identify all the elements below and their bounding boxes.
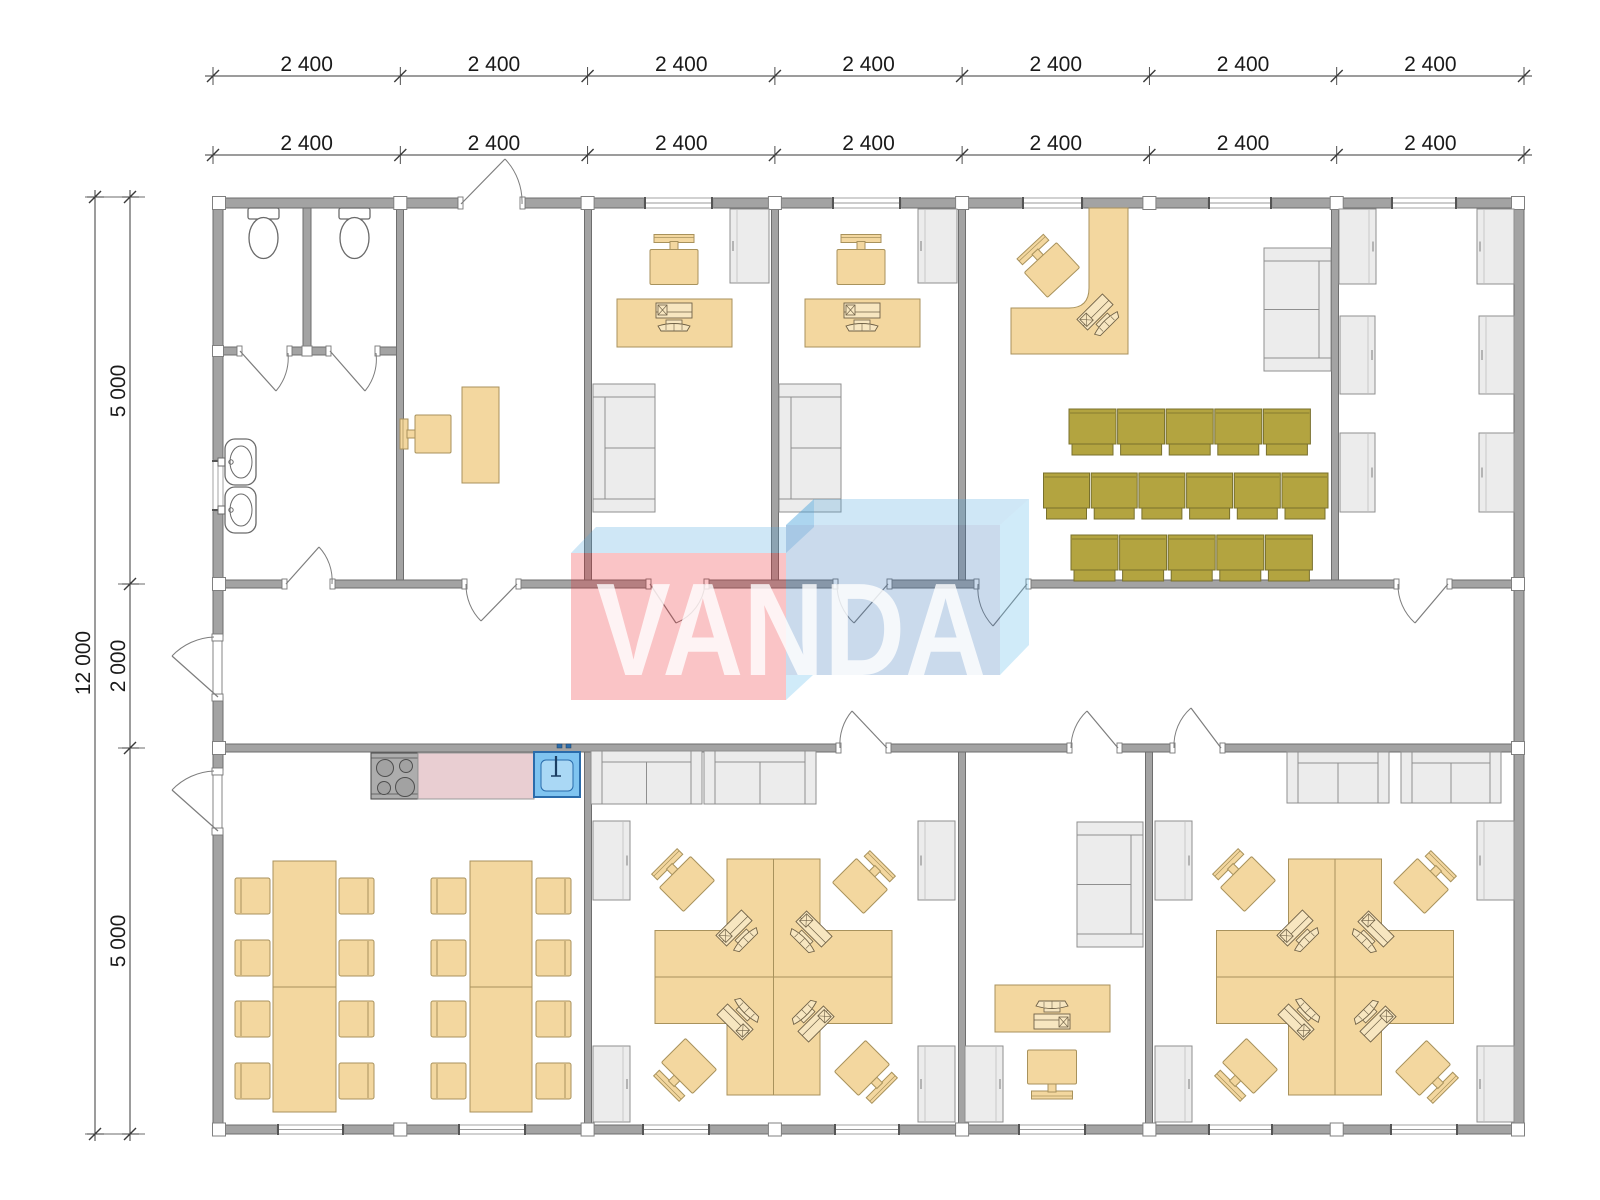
svg-text:5 000: 5 000 xyxy=(107,915,130,968)
svg-text:2 400: 2 400 xyxy=(468,53,521,76)
svg-text:2 400: 2 400 xyxy=(1029,132,1082,155)
svg-text:2 400: 2 400 xyxy=(1404,53,1457,76)
svg-text:2 400: 2 400 xyxy=(280,132,333,155)
svg-text:5 000: 5 000 xyxy=(107,365,130,418)
svg-text:VANDA: VANDA xyxy=(596,556,986,703)
svg-text:12 000: 12 000 xyxy=(72,631,95,695)
svg-text:2 400: 2 400 xyxy=(1217,53,1270,76)
svg-text:2 400: 2 400 xyxy=(842,132,895,155)
svg-text:2 400: 2 400 xyxy=(1404,132,1457,155)
svg-text:2 400: 2 400 xyxy=(280,53,333,76)
svg-text:2 000: 2 000 xyxy=(107,640,130,693)
svg-text:2 400: 2 400 xyxy=(655,53,708,76)
svg-text:2 400: 2 400 xyxy=(1029,53,1082,76)
svg-text:2 400: 2 400 xyxy=(1217,132,1270,155)
svg-text:2 400: 2 400 xyxy=(468,132,521,155)
svg-text:2 400: 2 400 xyxy=(655,132,708,155)
svg-text:2 400: 2 400 xyxy=(842,53,895,76)
